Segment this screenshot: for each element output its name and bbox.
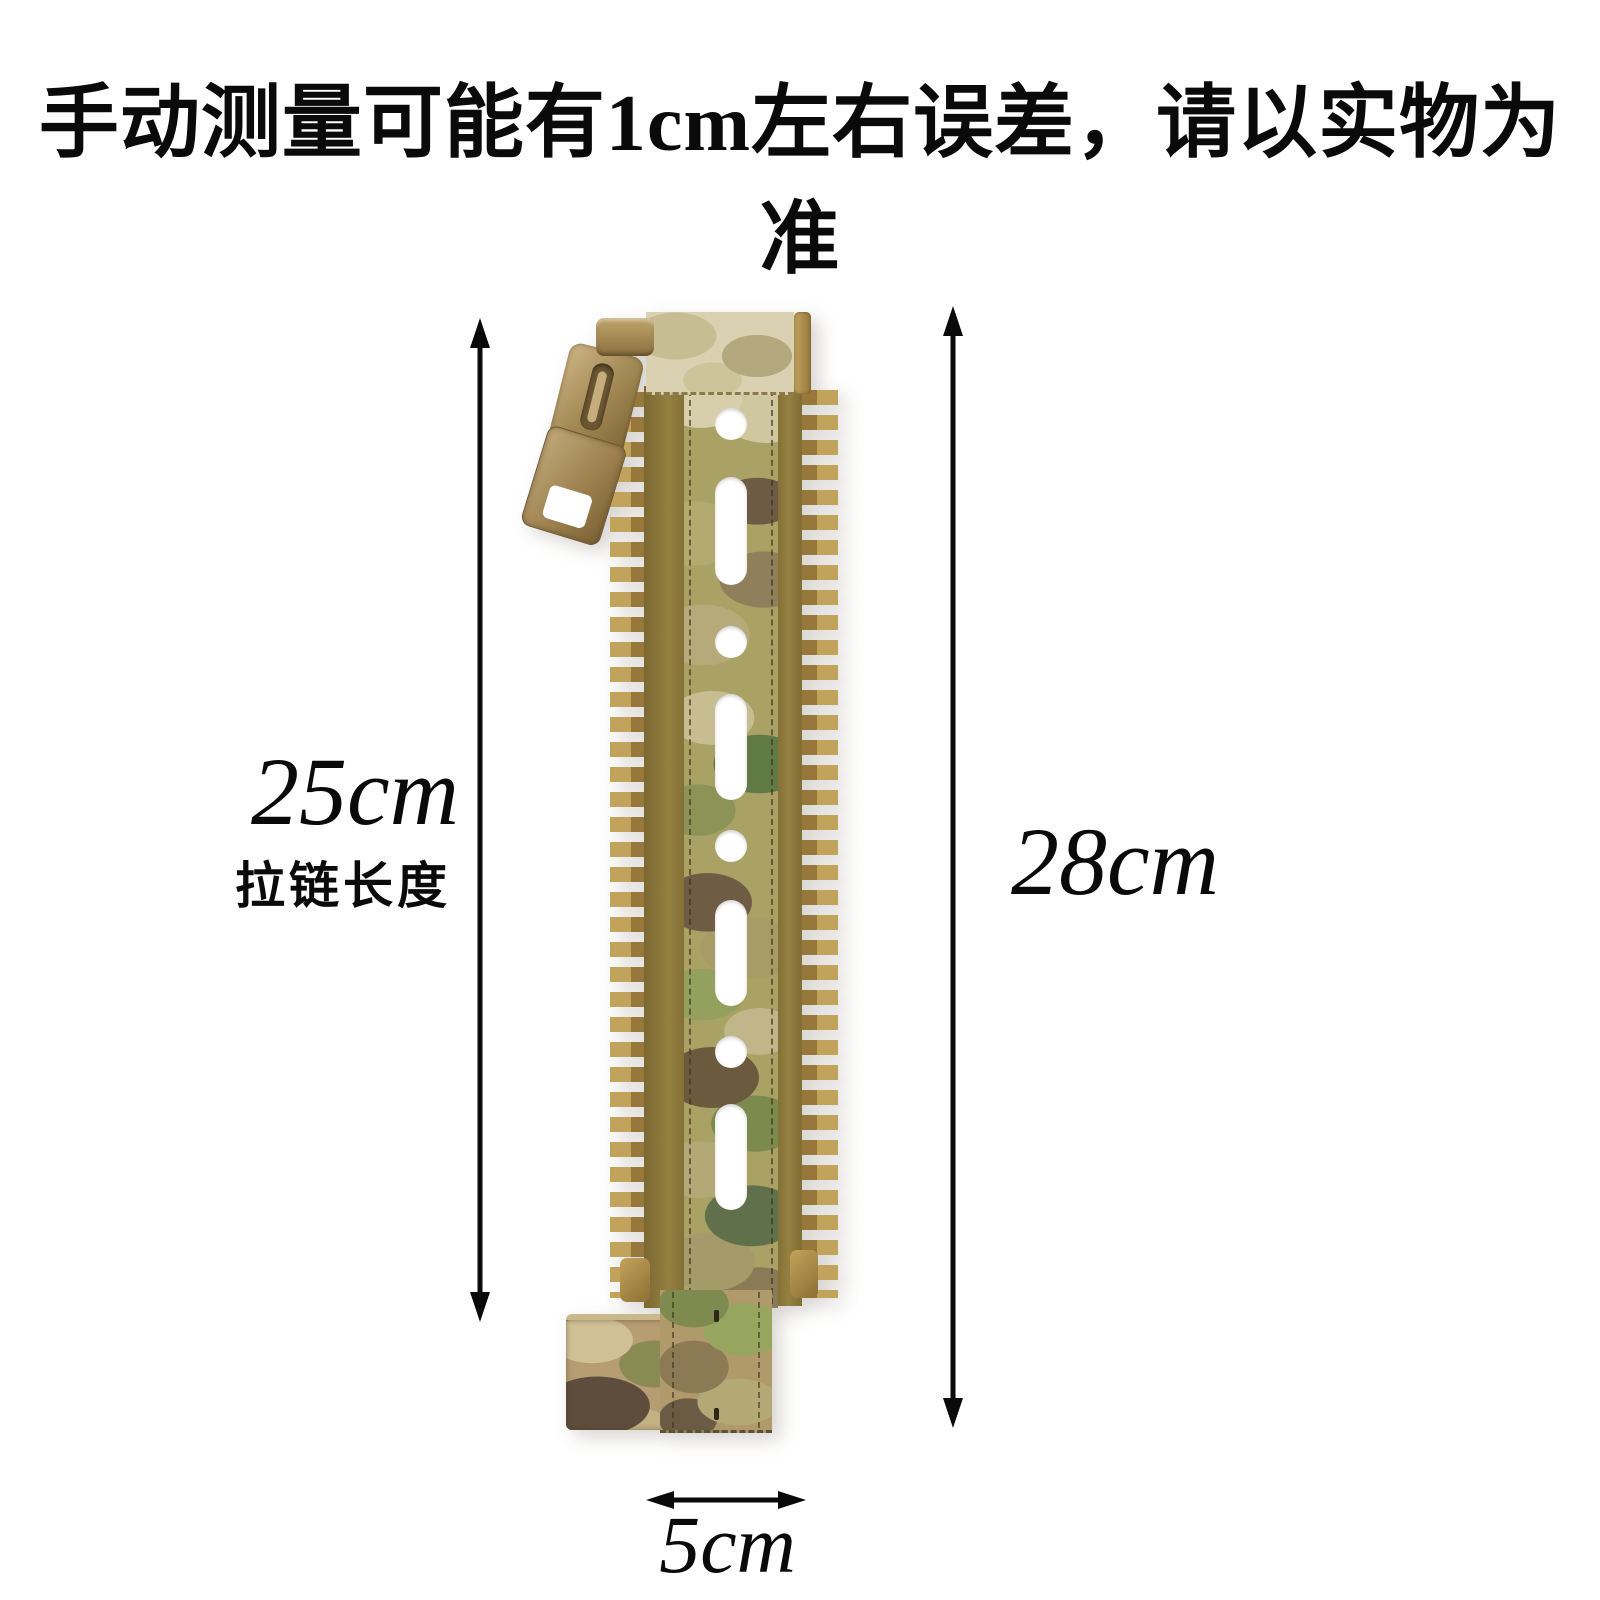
- bartack-stitch: [714, 1408, 719, 1420]
- zipper-retainer-pin: [794, 312, 811, 394]
- laser-cut-hole: [715, 626, 747, 658]
- laser-cut-hole: [715, 1036, 747, 1068]
- bartack-stitch: [714, 1310, 719, 1322]
- zipper-slider-cap: [596, 318, 654, 356]
- arrowhead-down-icon: [470, 1292, 490, 1322]
- laser-cut-hole: [715, 830, 747, 862]
- zipper-endstop-left: [620, 1258, 650, 1302]
- laser-cut-slot: [715, 477, 747, 585]
- arrow-line: [478, 342, 483, 1298]
- product-listing-image: 手动测量可能有1cm左右误差，请以实物为准 25cm 拉链长度 28cm 5cm: [0, 0, 1600, 1600]
- right-dimension-arrow: [942, 306, 964, 1428]
- zipper-tape-left: [644, 386, 688, 1308]
- camo-zipper-panel-photo: [540, 300, 870, 1450]
- total-length-value: 28cm: [995, 806, 1235, 917]
- zipper-top-tape: [646, 312, 794, 395]
- zipper-length-value: 25cm: [240, 736, 470, 847]
- arrowhead-down-icon: [943, 1398, 963, 1428]
- zipper-length-label: 拉链长度: [218, 846, 468, 918]
- zipper-endstop-right: [790, 1250, 818, 1298]
- disclaimer-text: 手动测量可能有1cm左右误差，请以实物为准: [0, 58, 1600, 290]
- left-dimension-arrow: [469, 318, 491, 1322]
- laser-cut-slot: [715, 900, 747, 1006]
- laser-cut-hole: [715, 408, 747, 440]
- pull-tab-hole: [541, 484, 593, 529]
- bottom-left-tab: [566, 1314, 670, 1430]
- laser-cut-slot: [715, 1104, 747, 1210]
- width-value: 5cm: [640, 1498, 815, 1592]
- bottom-webbing: [660, 1290, 772, 1433]
- camo-center-strip: [684, 386, 778, 1308]
- laser-cut-slot: [715, 694, 747, 800]
- arrow-line: [951, 330, 956, 1404]
